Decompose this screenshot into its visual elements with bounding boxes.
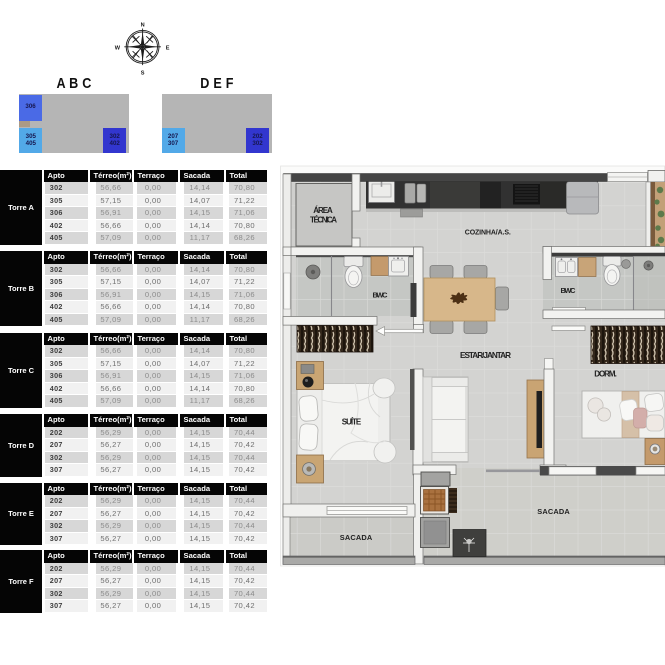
svg-text:SUÍTE: SUÍTE [342,418,362,427]
svg-text:BWC: BWC [373,290,389,299]
svg-text:W: W [115,46,121,52]
svg-text:TÉCNICA: TÉCNICA [310,215,337,224]
svg-text:E: E [166,46,170,52]
svg-text:SACADA: SACADA [340,533,373,542]
svg-text:COZINHA/A.S.: COZINHA/A.S. [465,229,511,236]
svg-text:ESTAR/JANTAR: ESTAR/JANTAR [460,351,511,360]
svg-text:S: S [141,71,145,77]
svg-text:ÁREA: ÁREA [313,206,333,215]
svg-text:DORM.: DORM. [594,369,617,378]
svg-text:BWC: BWC [561,286,577,295]
svg-text:N: N [141,22,145,28]
svg-text:SACADA: SACADA [537,507,570,516]
